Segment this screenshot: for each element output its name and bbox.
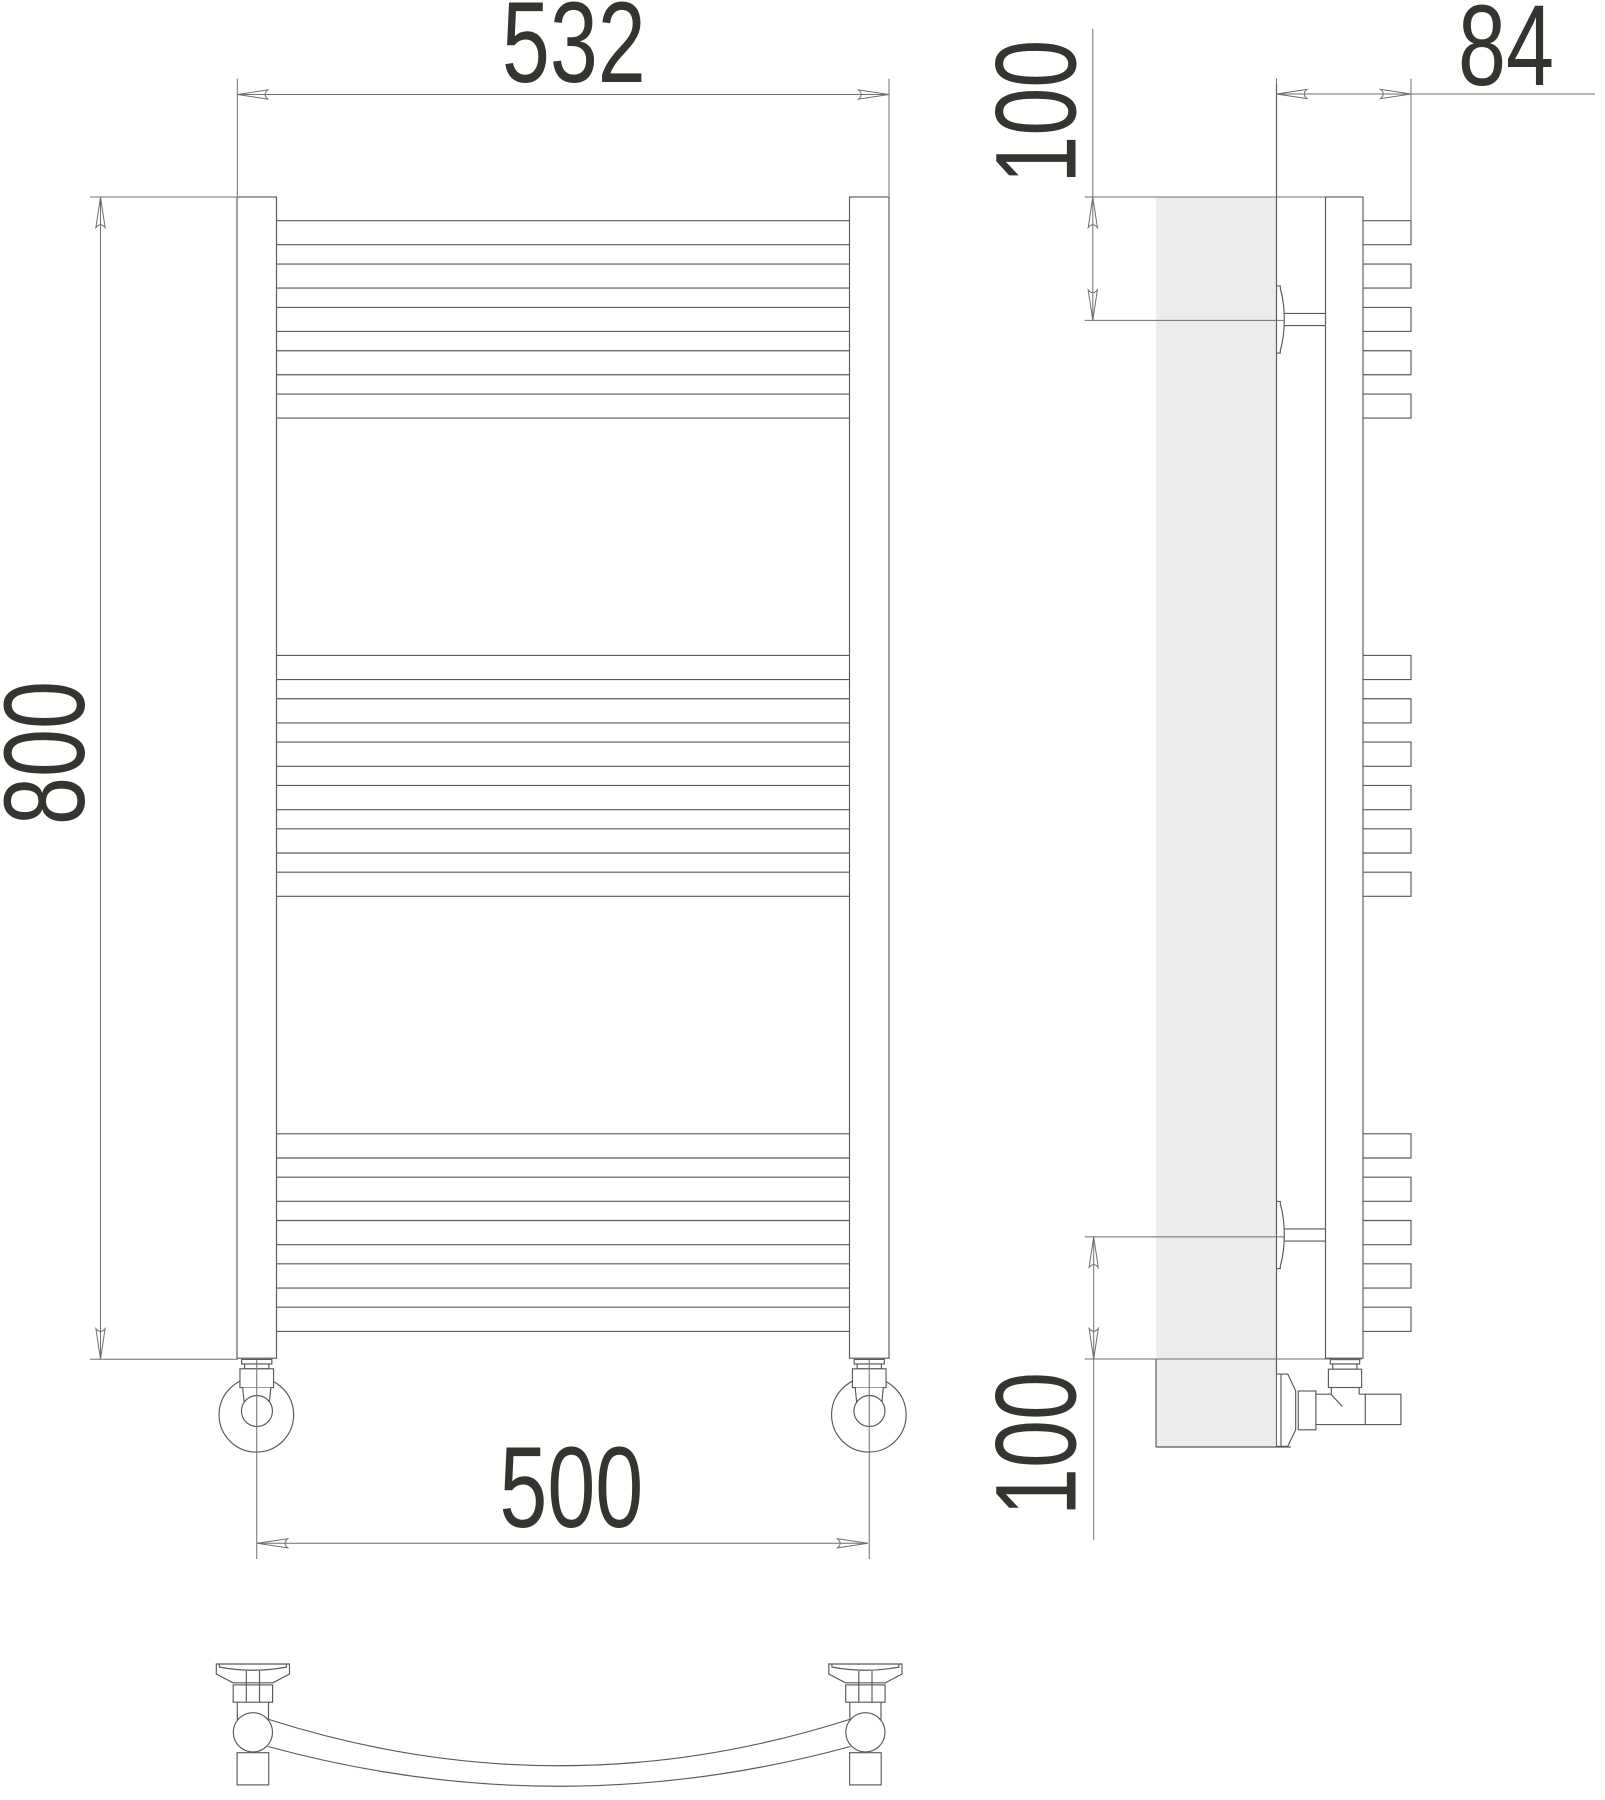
svg-text:532: 532 — [502, 0, 646, 107]
svg-text:100: 100 — [972, 40, 1101, 184]
svg-text:500: 500 — [499, 1423, 643, 1552]
svg-text:800: 800 — [0, 681, 109, 825]
svg-text:100: 100 — [972, 1372, 1101, 1516]
